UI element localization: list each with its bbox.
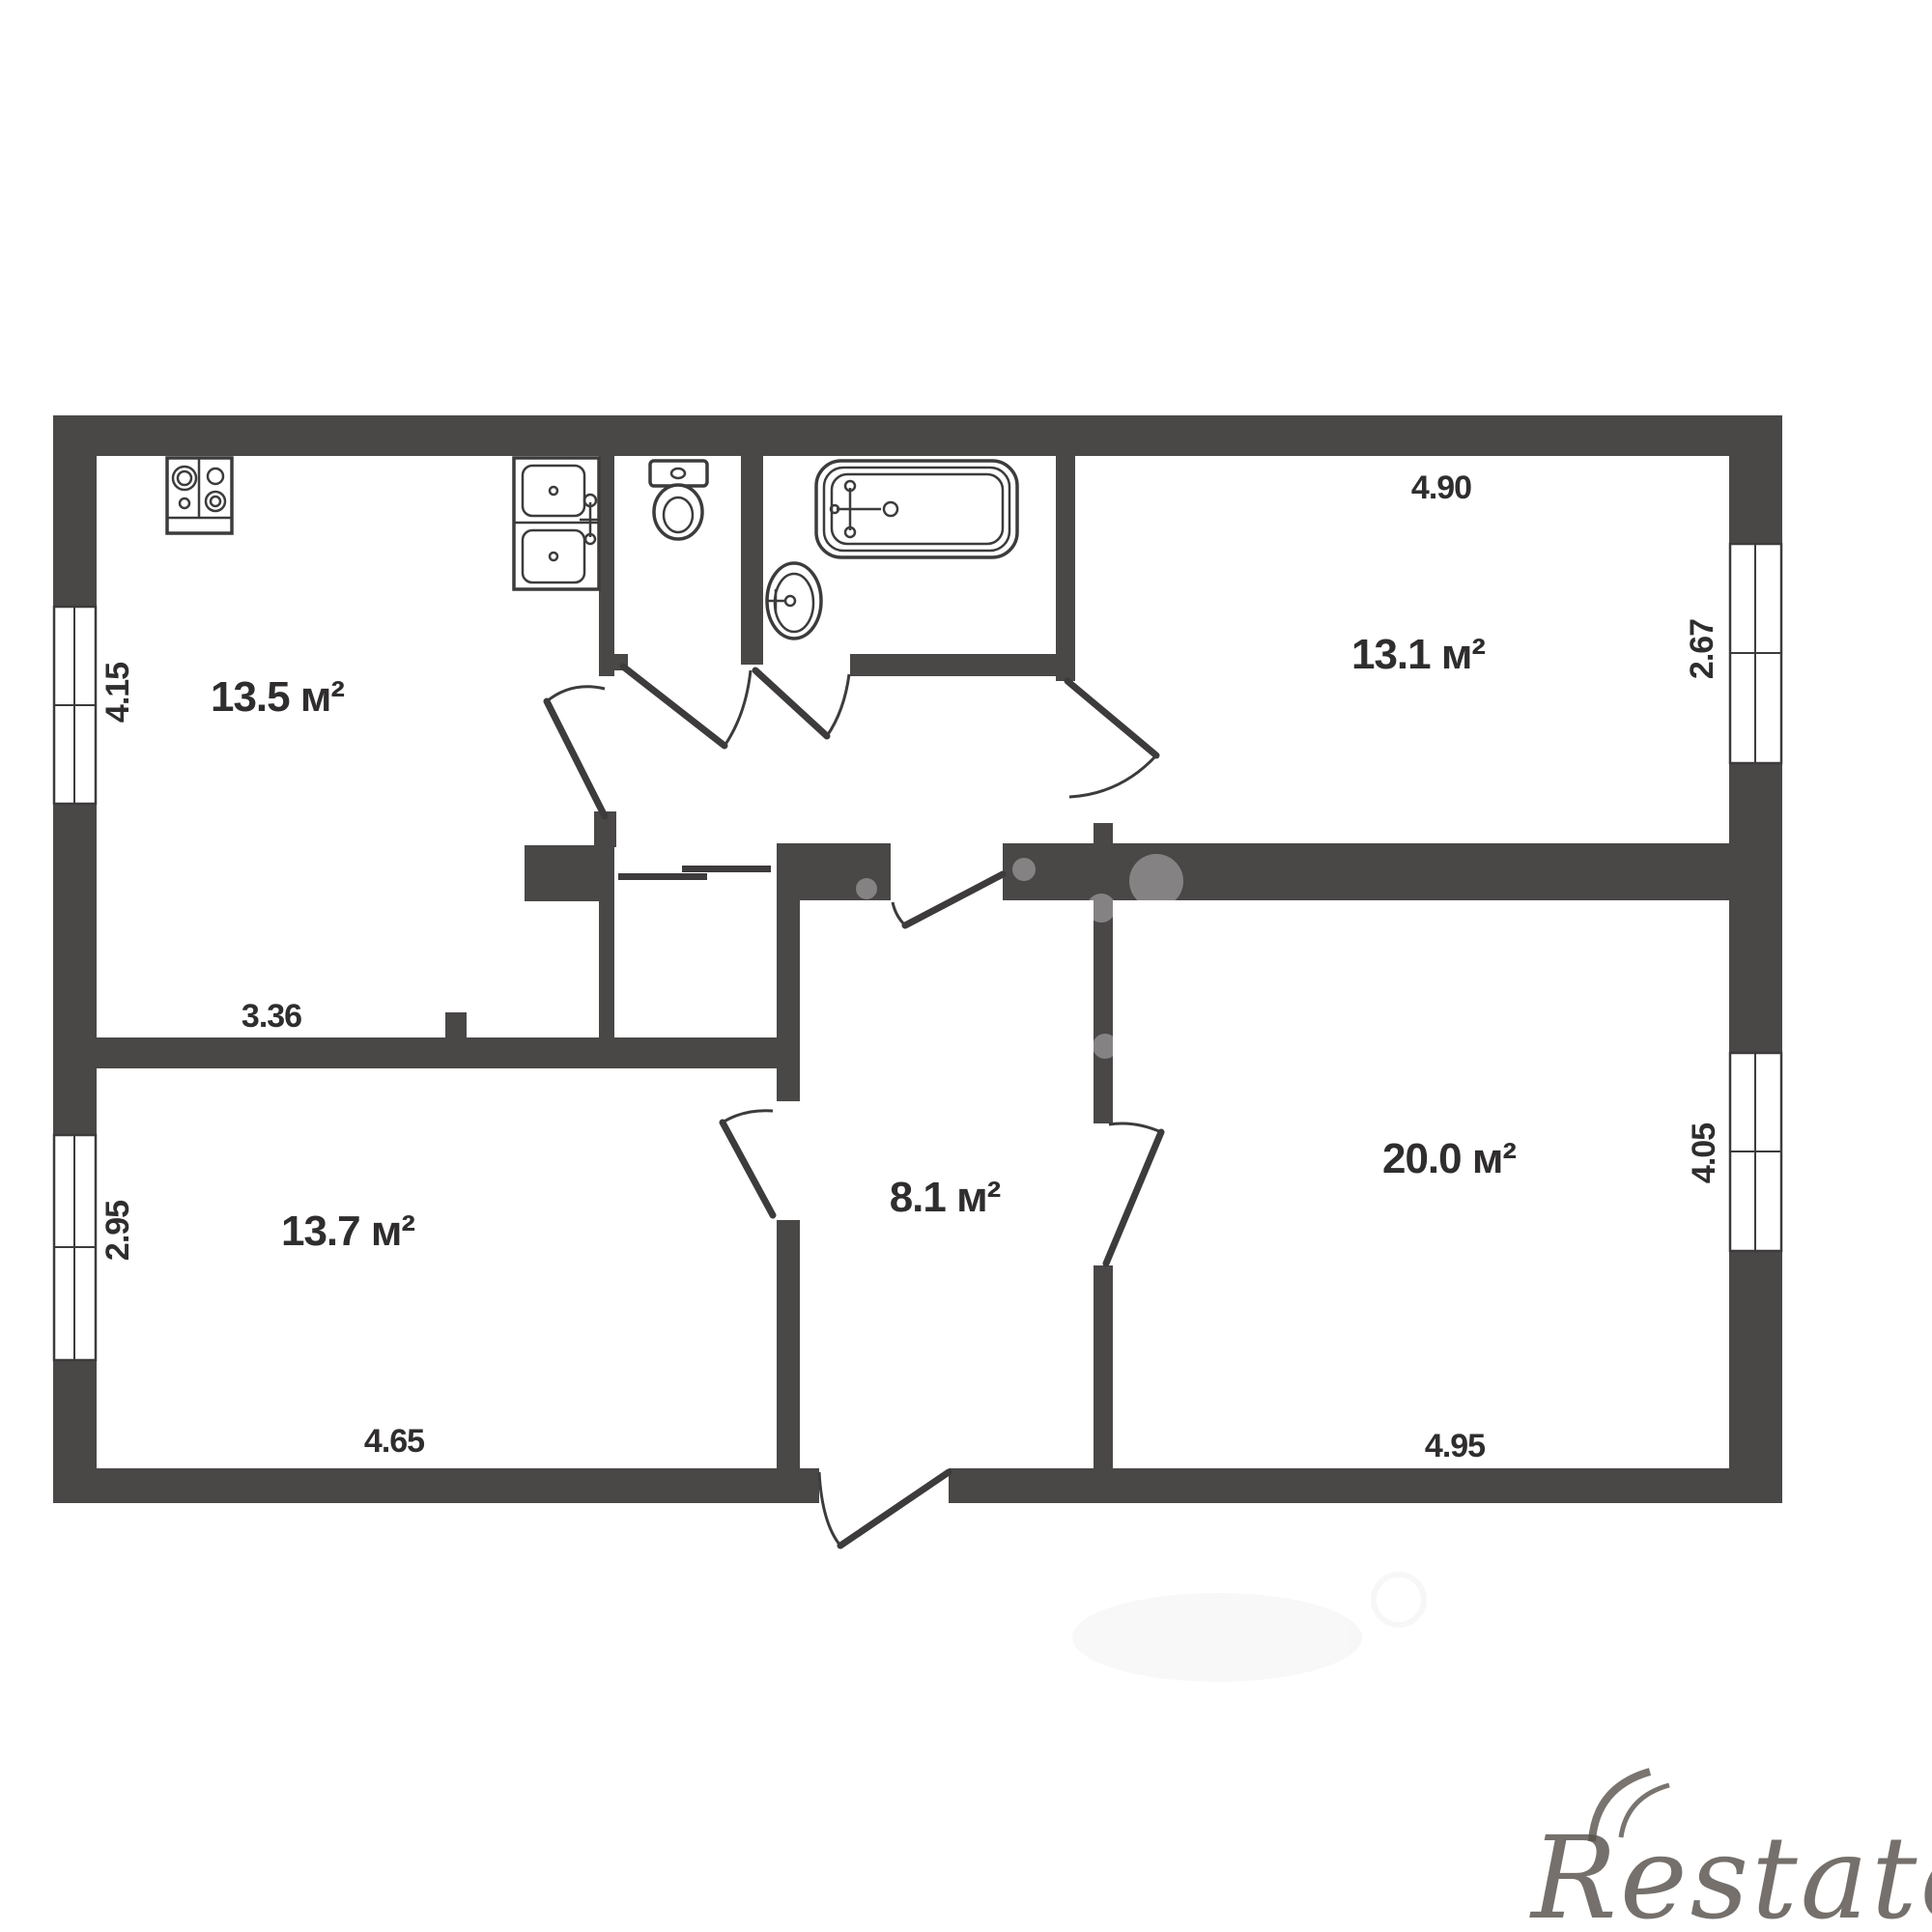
watermark-restate: Restate [1529,1772,1932,1932]
kitchen-fixtures [167,458,601,589]
window-room-13-7 [54,1135,96,1360]
dim-2-95: 2.95 [99,1201,136,1261]
wall-pylon [525,845,599,901]
door-room-13-1 [1067,681,1156,797]
dim-3-36: 3.36 [241,998,301,1035]
wall-bottom-left [53,1468,819,1503]
window-room-20-0 [1730,1053,1781,1251]
outer-walls [53,415,1782,1503]
wall-bath-131 [1056,456,1075,681]
dim-4-90: 4.90 [1411,469,1471,506]
window-room-13-1 [1730,544,1781,763]
dim-4-05: 4.05 [1686,1123,1722,1183]
label-room-20-0-area: 20.0 м² [1382,1135,1516,1182]
doors [547,667,1161,1546]
door-bathroom [755,670,849,736]
door-wc [623,667,751,746]
door-room-13-7 [723,1111,773,1215]
door-hall-opening [893,874,1003,925]
bathroom-fixtures [650,461,1017,639]
washbasin-icon [767,563,821,639]
room-labels: 13.5 м² 13.1 м² 13.7 м² 8.1 м² 20.0 м² [211,631,1516,1255]
stove-icon [167,458,232,533]
wall-bottom-right [949,1468,1782,1503]
dim-2-67: 2.67 [1684,619,1720,679]
wall-stub-131-corner [1094,823,1113,843]
dim-4-15: 4.15 [99,663,136,723]
label-room-13-7-area: 13.7 м² [281,1207,414,1255]
interior-walls [95,456,1729,1468]
wall-hall-right-upper [1094,900,1113,1123]
wall-kitchen-137-divider [95,1037,782,1068]
wall-131-200-divider [1003,843,1729,900]
door-room-20-0 [1106,1123,1161,1264]
bathtub-icon [816,461,1017,557]
label-hall-area: 8.1 м² [890,1174,1001,1221]
label-room-13-1-area: 13.1 м² [1351,631,1485,678]
kitchen-sink-icon [514,458,601,589]
wall-wc-bath [741,456,763,665]
toilet-icon [650,461,707,539]
floor-plan-image: 13.5 м² 13.1 м² 13.7 м² 8.1 м² 20.0 м² 4… [0,0,1932,1932]
window-kitchen [54,607,96,804]
door-kitchen [547,687,605,816]
sliding-door-closet [618,866,771,880]
label-kitchen-area: 13.5 м² [211,673,344,721]
dim-4-65: 4.65 [364,1423,424,1460]
wall-hall-right-lower [1094,1265,1113,1468]
door-entrance [819,1472,949,1546]
faint-watermark-logo [1072,1575,1424,1682]
dimension-labels: 4.90 2.67 4.15 3.36 2.95 4.65 4.05 4.95 [99,469,1722,1464]
wall-kitchen-wc [599,456,614,676]
wall-kitchen-lower [599,847,614,1048]
dim-4-95: 4.95 [1425,1428,1485,1464]
wall-stub-radiator [445,1012,467,1037]
watermark-text: Restate [1529,1811,1932,1932]
wall-bath-bottom [850,654,1056,676]
wall-top [53,415,1782,456]
wall-hall-left-lower [777,1220,800,1468]
